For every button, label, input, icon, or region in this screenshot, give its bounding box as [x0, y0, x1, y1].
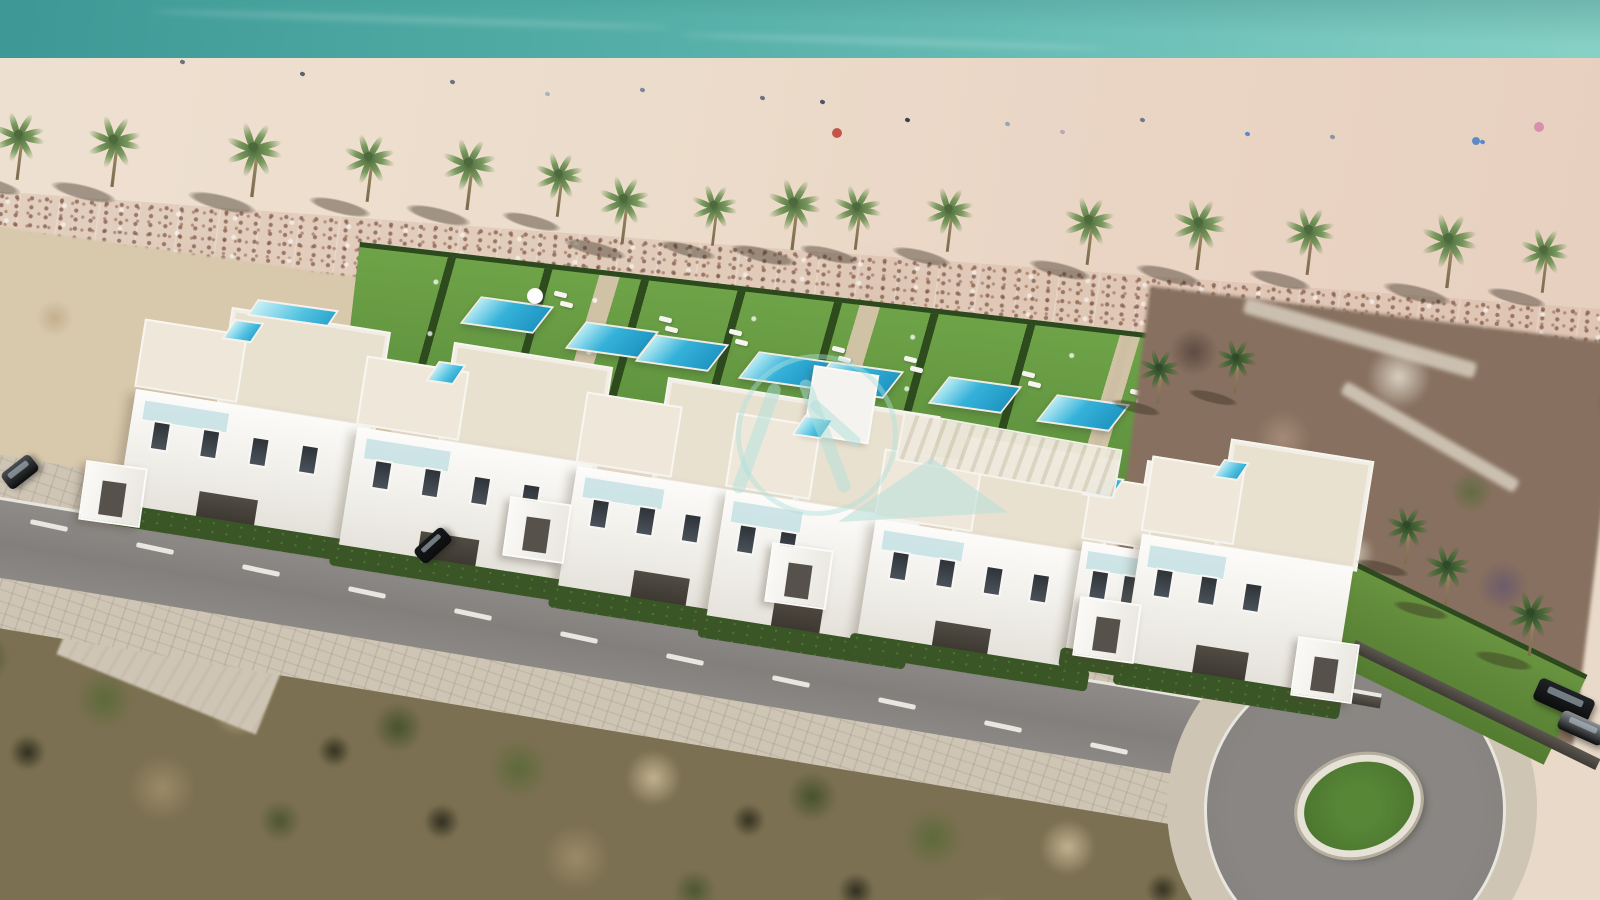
palm-crown-core	[1155, 364, 1162, 370]
palm-crown-core	[364, 152, 373, 160]
aerial-render-scene	[0, 0, 1600, 900]
beach-umbrella	[1472, 137, 1480, 145]
palm-crown-core	[554, 169, 563, 177]
palm-crown-core	[1443, 233, 1453, 242]
palm-crown-core	[1403, 521, 1411, 528]
palm-crown-core	[852, 202, 861, 210]
palm-crown-core	[1443, 561, 1451, 568]
entrance-gate	[78, 460, 148, 528]
palm-crown-core	[619, 194, 628, 202]
palm-crown-core	[1084, 215, 1093, 223]
beach-umbrella	[832, 128, 842, 138]
entrance-gate	[1072, 596, 1142, 664]
villa-roof-lower	[575, 392, 682, 478]
gate-doorway	[98, 480, 126, 518]
palm-crown-core	[1194, 218, 1203, 226]
entrance-gate	[764, 542, 834, 610]
palm-crown-core	[710, 201, 718, 208]
garden-parasol	[527, 288, 543, 304]
car-windshield	[1568, 717, 1598, 735]
palm-crown-core	[248, 142, 258, 151]
palm-crown-core	[1526, 608, 1535, 616]
palm-crown-core	[789, 198, 798, 206]
entrance-gate	[502, 496, 572, 564]
palm-crown-core	[1232, 354, 1239, 360]
palm-crown-core	[464, 158, 473, 166]
gate-doorway	[1092, 616, 1120, 654]
palm-crown-core	[1539, 245, 1548, 253]
palm-crown-core	[14, 130, 23, 138]
gate-doorway	[784, 562, 812, 600]
palm-crown-core	[1304, 225, 1313, 233]
gate-doorway	[522, 516, 550, 554]
gate-doorway	[1310, 656, 1338, 694]
palm-crown-core	[109, 135, 118, 143]
palm-crown-core	[944, 204, 953, 212]
beach-umbrella	[1534, 122, 1544, 132]
entrance-gate	[1290, 636, 1360, 704]
